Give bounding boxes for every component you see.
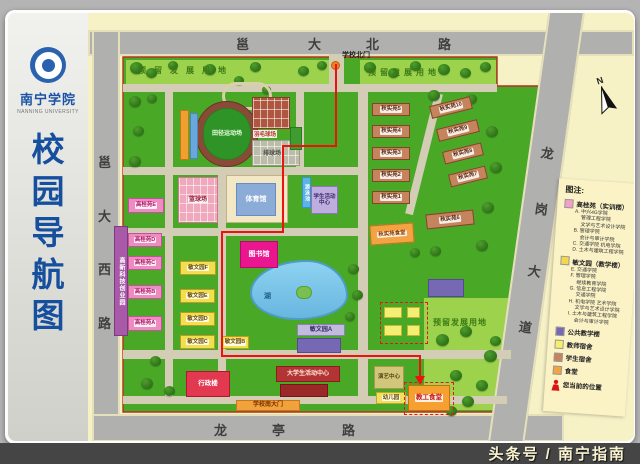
- staff-canteen: 教工食堂: [408, 385, 450, 411]
- campus-internal-road: [123, 84, 497, 92]
- south-gate-label: 学校南大门: [253, 402, 283, 409]
- dorm-8: 秋实苑8: [442, 142, 484, 164]
- gaogui-b: 高桂苑B: [128, 285, 162, 299]
- map-title-char: 图: [8, 297, 88, 339]
- current-location-person-icon: [552, 378, 561, 390]
- performing-arts-center: 演艺中心: [374, 366, 404, 389]
- tree-icon: [348, 264, 359, 274]
- hitech-park-label: 高新科技创业园: [118, 257, 124, 306]
- minwen-a: 敏文园A: [297, 324, 345, 336]
- dorm-10-label: 秋实苑10: [438, 102, 463, 114]
- tree-icon: [410, 248, 420, 257]
- dorm-5: 秋实苑5: [372, 103, 410, 116]
- student-activity-center-label: 学生活动中心: [312, 194, 337, 206]
- tree-icon: [462, 396, 474, 407]
- univ-student-activity-center-label: 大学生活动中心: [287, 371, 329, 378]
- minwen-c-label: 敏文园C: [186, 339, 208, 345]
- legend-color-swatch: [553, 352, 563, 362]
- legend-color-swatch: [560, 256, 570, 266]
- campus-internal-road: [218, 167, 226, 397]
- gaogui-e-label: 高桂苑E: [135, 202, 157, 208]
- dorm-8-label: 秋实苑8: [452, 148, 474, 159]
- road-name-char: 龙: [540, 142, 556, 163]
- green-court: [290, 127, 302, 150]
- gaogui-c-label: 高桂苑C: [134, 260, 156, 266]
- map-text: 排球场: [263, 148, 281, 157]
- hitech-park: 高新科技创业园: [114, 226, 128, 336]
- tree-icon: [490, 336, 501, 346]
- grandstand: [180, 110, 189, 160]
- legend-item-label: 学生宿舍: [565, 353, 592, 365]
- gaogui-c: 高桂苑C: [128, 256, 162, 270]
- teacher-dorm-4: [407, 325, 420, 336]
- tree-icon: [490, 162, 502, 173]
- map-title-char: 园: [8, 173, 88, 215]
- road-name-char: 北: [366, 34, 379, 53]
- tree-icon: [250, 62, 261, 72]
- teacher-dorm-3: [384, 325, 402, 336]
- legend-item-label: 食堂: [564, 366, 578, 377]
- gymnasium-roof-label: 体育馆: [246, 196, 267, 204]
- performing-arts-center-label: 演艺中心: [378, 374, 400, 380]
- tree-icon: [476, 380, 488, 391]
- legend-title: 图注:: [565, 184, 634, 200]
- dorm-7: 秋实苑7: [448, 166, 488, 188]
- tree-icon: [298, 66, 309, 76]
- gymnasium-roof: 体育馆: [236, 183, 276, 216]
- road-name-char: 邕: [98, 152, 111, 171]
- compass-north-icon: N: [586, 71, 621, 116]
- university-emblem-icon: [35, 52, 62, 79]
- tree-icon: [129, 156, 141, 167]
- basketball-courts: 篮球场: [178, 177, 218, 223]
- univ-student-activity-center: 大学生活动中心: [276, 366, 340, 382]
- road-name-char: 亭: [272, 420, 285, 439]
- tree-icon: [460, 68, 471, 78]
- legend-item-label: 您当前的位置: [563, 379, 603, 392]
- dorm-3-label: 秋实苑3: [380, 150, 402, 156]
- public-teaching-1: [297, 338, 341, 353]
- tree-icon: [436, 334, 449, 346]
- staff-canteen-label: 教工食堂: [415, 394, 443, 401]
- gaogui-d-label: 高桂苑D: [134, 237, 156, 243]
- map-text: 羽毛球场: [253, 130, 277, 138]
- minwen-e: 敏文园E: [180, 289, 215, 303]
- tennis-courts: [252, 97, 290, 129]
- tree-icon: [480, 62, 491, 72]
- map-text: 预留发展用地: [368, 67, 440, 78]
- tree-icon: [486, 126, 498, 137]
- tree-icon: [476, 240, 488, 251]
- track-field-label: 田径运动场: [212, 131, 242, 138]
- kindergarten: 幼儿园: [376, 392, 406, 404]
- dorm-9: 秋实苑9: [436, 119, 480, 142]
- road-name-char: 大: [527, 260, 543, 281]
- map-title-char: 导: [8, 214, 88, 256]
- minwen-d: 敏文园D: [180, 312, 215, 326]
- legend-panel: 图注: 高桂苑（实训楼）A. 中兴4G学院 管理工程学院 文学与艺术设计学院B.…: [543, 178, 634, 416]
- basketball-courts-label: 篮球场: [188, 197, 208, 204]
- library-label: 图书馆: [249, 251, 270, 259]
- dorm-2-label: 秋实苑2: [380, 172, 402, 178]
- minwen-b-label: 敏文园B: [224, 339, 246, 345]
- map-text: 湖: [264, 291, 271, 301]
- teacher-dorm-2: [407, 307, 420, 318]
- dorm-9-label: 秋实苑9: [447, 125, 469, 136]
- minwen-f-label: 敏文园F: [187, 265, 209, 271]
- legend-color-swatch: [553, 365, 563, 375]
- tree-icon: [141, 378, 153, 389]
- swimming-pool-label: 游泳池: [304, 184, 309, 202]
- minwen-b: 敏文园B: [221, 336, 249, 349]
- teacher-dorm-1: [384, 307, 402, 318]
- tree-icon: [484, 350, 497, 362]
- legend-item-sublist: E. 交通学院F. 管理学院 继续教育学院G. 信息工程学院 交通学院H. 机电…: [556, 265, 632, 327]
- gaogui-a: 高桂苑A: [128, 316, 162, 331]
- dorm-canteen: 秋实苑食堂: [369, 222, 414, 245]
- grandstand-strip: [190, 113, 198, 159]
- map-inner: 田径运动场篮球场体育馆高桂苑E高桂苑D高桂苑C高桂苑B高桂苑A高新科技创业园敏文…: [88, 13, 634, 441]
- dorm-7-label: 秋实苑7: [457, 171, 479, 182]
- minwen-d-label: 敏文园D: [186, 316, 208, 322]
- legend-item-label: 教师宿舍: [566, 340, 593, 352]
- road-name-char: 路: [342, 420, 355, 439]
- map-title-char: 航: [8, 256, 88, 298]
- dorm-6: 秋实苑6: [425, 210, 474, 230]
- watermark: 头条号 / 南宁指南: [0, 443, 640, 464]
- campus-map: 田径运动场篮球场体育馆高桂苑E高桂苑D高桂苑C高桂苑B高桂苑A高新科技创业园敏文…: [88, 13, 634, 441]
- tree-icon: [129, 96, 141, 107]
- dorm-4-label: 秋实苑4: [380, 128, 402, 134]
- road-name-char: 岗: [534, 198, 550, 219]
- dorm-3: 秋实苑3: [372, 147, 410, 160]
- campus-internal-road: [165, 84, 173, 397]
- map-title-char: 校: [8, 131, 88, 173]
- track-field: 田径运动场: [203, 108, 251, 160]
- tree-icon: [482, 202, 494, 213]
- south-gate: 学校南大门: [236, 400, 300, 411]
- campus-internal-road: [358, 84, 368, 397]
- university-logo-icon: [30, 47, 66, 83]
- gaogui-a-label: 高桂苑A: [134, 320, 156, 326]
- legend-color-swatch: [564, 198, 574, 208]
- tree-icon: [164, 386, 175, 396]
- road-name-char: 大: [308, 34, 321, 53]
- kindergarten-label: 幼儿园: [382, 395, 401, 401]
- legend-item-sublist: A. 中兴4G学院 管理工程学院 文学与艺术设计学院B. 管理学院 会计与审计学…: [561, 208, 634, 258]
- dorm-canteen-label: 秋实苑食堂: [377, 230, 407, 238]
- map-title-vertical: 校园导航图: [8, 131, 88, 339]
- campus-map-photo: 南宁学院 NANNING UNIVERSITY 校园导航图 田径运动场篮球场体育…: [0, 0, 640, 464]
- minwen-a-label: 敏文园A: [310, 327, 332, 334]
- road-name-char: 路: [98, 313, 111, 332]
- gaogui-e: 高桂苑E: [128, 198, 164, 213]
- tree-icon: [352, 290, 363, 300]
- lake-island: [296, 286, 312, 299]
- dorm-2: 秋实苑2: [372, 169, 410, 182]
- swimming-pool: 游泳池: [302, 177, 311, 208]
- admin-building-label: 行政楼: [198, 380, 218, 387]
- library: 图书馆: [240, 241, 278, 268]
- dorm-4: 秋实苑4: [372, 125, 410, 138]
- public-teaching-2: [428, 279, 464, 297]
- auditorium: [280, 384, 328, 397]
- map-text: 预留发展用地: [138, 65, 234, 76]
- dorm-5-label: 秋实苑5: [380, 106, 402, 112]
- legend-color-swatch: [554, 339, 564, 349]
- legend-items: 高桂苑（实训楼）A. 中兴4G学院 管理工程学院 文学与艺术设计学院B. 管理学…: [552, 198, 634, 394]
- legend-item-label: 公共教学楼: [567, 327, 600, 339]
- tree-icon: [317, 61, 327, 70]
- route-arrowhead-icon: [415, 376, 425, 385]
- tree-icon: [133, 126, 144, 136]
- road-name-char: 路: [438, 34, 451, 53]
- road-name-char: 邕: [236, 34, 249, 53]
- tree-icon: [428, 90, 440, 101]
- legend-item: 您当前的位置: [552, 378, 625, 394]
- university-name: 南宁学院: [8, 89, 88, 108]
- tree-icon: [345, 312, 355, 321]
- minwen-e-label: 敏文园E: [186, 293, 208, 299]
- road-name-char: 大: [98, 206, 111, 225]
- tree-icon: [450, 370, 462, 381]
- road-name-char: 道: [518, 316, 534, 337]
- north-gate-dot: [331, 61, 340, 70]
- title-sidebar: 南宁学院 NANNING UNIVERSITY 校园导航图: [8, 13, 88, 441]
- road-name-char: 西: [98, 259, 111, 278]
- tree-icon: [147, 94, 157, 103]
- legend-color-swatch: [555, 326, 565, 336]
- university-name-en: NANNING UNIVERSITY: [8, 109, 88, 115]
- student-activity-center: 学生活动中心: [311, 186, 338, 214]
- tree-icon: [150, 356, 161, 366]
- minwen-f: 敏文园F: [180, 261, 216, 275]
- gaogui-b-label: 高桂苑B: [134, 289, 156, 295]
- dorm-1: 秋实苑1: [372, 191, 410, 204]
- compass-n-label: N: [595, 75, 604, 87]
- map-text: 预留发展用地: [433, 317, 487, 328]
- gaogui-d: 高桂苑D: [128, 233, 162, 247]
- admin-building: 行政楼: [186, 371, 230, 397]
- dorm-1-label: 秋实苑1: [380, 194, 402, 200]
- dorm-6-label: 秋实苑6: [439, 215, 461, 223]
- road-name-char: 龙: [214, 420, 227, 439]
- campus-internal-road: [123, 167, 365, 175]
- minwen-c: 敏文园C: [180, 335, 215, 349]
- tree-icon: [430, 246, 441, 256]
